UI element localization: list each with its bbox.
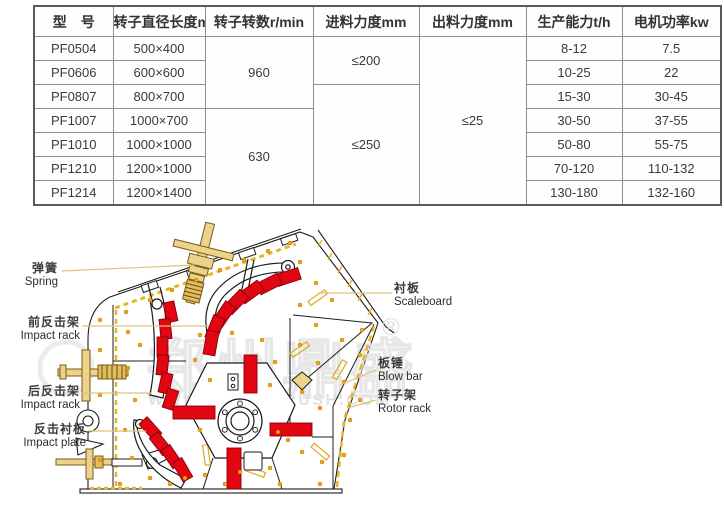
cell-capacity: 10-25 bbox=[526, 61, 622, 85]
col-header-rotor-size: 转子直径长度mm bbox=[113, 6, 205, 37]
label-front-impact-rack-en: Impact rack bbox=[8, 330, 80, 343]
cell-model: PF0606 bbox=[34, 61, 113, 85]
cell-model: PF1007 bbox=[34, 109, 113, 133]
cell-size: 1000×1000 bbox=[113, 133, 205, 157]
page: { "table": { "headers": ["型 号", "转子直径长度m… bbox=[0, 0, 724, 509]
label-rotor-rack-zh: 转子架 bbox=[378, 389, 431, 402]
label-impact-plate-zh: 反击衬板 bbox=[8, 423, 86, 436]
cell-size: 1000×700 bbox=[113, 109, 205, 133]
col-header-model: 型 号 bbox=[34, 6, 113, 37]
cell-capacity: 130-180 bbox=[526, 181, 622, 206]
label-rotor-rack: 转子架 Rotor rack bbox=[378, 389, 431, 416]
label-impact-plate-en: Impact plate bbox=[8, 437, 86, 450]
col-header-output: 出料力度mm bbox=[419, 6, 526, 37]
label-scaleboard: 衬板 Scaleboard bbox=[394, 282, 452, 309]
col-header-feed: 进料力度mm bbox=[313, 6, 419, 37]
crusher-diagram: 郑州鼎盛 WWW.CHINACRUSH.COM ® bbox=[0, 218, 724, 509]
label-rear-impact-rack-zh: 后反击架 bbox=[8, 385, 80, 398]
table-row: PF0504 500×400 960 ≤200 ≤25 8-12 7.5 bbox=[34, 37, 721, 61]
label-scaleboard-zh: 衬板 bbox=[394, 282, 452, 295]
cell-size: 1200×1400 bbox=[113, 181, 205, 206]
cell-size: 500×400 bbox=[113, 37, 205, 61]
cell-model: PF0807 bbox=[34, 85, 113, 109]
label-impact-plate: 反击衬板 Impact plate bbox=[8, 423, 86, 450]
cell-power: 7.5 bbox=[622, 37, 721, 61]
label-spring-zh: 弹簧 bbox=[8, 262, 58, 275]
label-blow-bar-en: Blow bar bbox=[378, 371, 423, 384]
cell-size: 600×600 bbox=[113, 61, 205, 85]
cell-capacity: 70-120 bbox=[526, 157, 622, 181]
cell-model: PF0504 bbox=[34, 37, 113, 61]
cell-power: 22 bbox=[622, 61, 721, 85]
cell-power: 37-55 bbox=[622, 109, 721, 133]
label-front-impact-rack-zh: 前反击架 bbox=[8, 316, 80, 329]
cell-capacity: 15-30 bbox=[526, 85, 622, 109]
label-spring-en: Spring bbox=[8, 276, 58, 289]
cell-capacity: 50-80 bbox=[526, 133, 622, 157]
cell-feed: ≤200 bbox=[313, 37, 419, 85]
cell-power: 132-160 bbox=[622, 181, 721, 206]
cell-output: ≤25 bbox=[419, 37, 526, 206]
col-header-capacity: 生产能力t/h bbox=[526, 6, 622, 37]
label-blow-bar-zh: 板锤 bbox=[378, 357, 423, 370]
label-front-impact-rack: 前反击架 Impact rack bbox=[8, 316, 80, 343]
cell-power: 30-45 bbox=[622, 85, 721, 109]
label-rotor-rack-en: Rotor rack bbox=[378, 403, 431, 416]
cell-size: 800×700 bbox=[113, 85, 205, 109]
watermark-registered-icon: ® bbox=[382, 314, 400, 341]
cell-speed: 960 bbox=[205, 37, 313, 109]
label-blow-bar: 板锤 Blow bar bbox=[378, 357, 423, 384]
label-rear-impact-rack: 后反击架 Impact rack bbox=[8, 385, 80, 412]
col-header-speed: 转子转数r/min bbox=[205, 6, 313, 37]
cell-capacity: 30-50 bbox=[526, 109, 622, 133]
label-scaleboard-en: Scaleboard bbox=[394, 296, 452, 309]
cell-feed: ≤250 bbox=[313, 85, 419, 206]
cell-power: 55-75 bbox=[622, 133, 721, 157]
cell-capacity: 8-12 bbox=[526, 37, 622, 61]
cell-power: 110-132 bbox=[622, 157, 721, 181]
table-row: PF0807 800×700 ≤250 15-30 30-45 bbox=[34, 85, 721, 109]
cell-speed: 630 bbox=[205, 109, 313, 206]
label-spring: 弹簧 Spring bbox=[8, 262, 58, 289]
spec-table: 型 号 转子直径长度mm 转子转数r/min 进料力度mm 出料力度mm 生产能… bbox=[33, 5, 722, 206]
label-rear-impact-rack-en: Impact rack bbox=[8, 399, 80, 412]
leader-spring bbox=[62, 265, 195, 271]
header-row: 型 号 转子直径长度mm 转子转数r/min 进料力度mm 出料力度mm 生产能… bbox=[34, 6, 721, 37]
cell-size: 1200×1000 bbox=[113, 157, 205, 181]
cell-model: PF1214 bbox=[34, 181, 113, 206]
col-header-power: 电机功率kw bbox=[622, 6, 721, 37]
spec-table-container: 型 号 转子直径长度mm 转子转数r/min 进料力度mm 出料力度mm 生产能… bbox=[33, 5, 722, 206]
cell-model: PF1210 bbox=[34, 157, 113, 181]
cell-model: PF1010 bbox=[34, 133, 113, 157]
